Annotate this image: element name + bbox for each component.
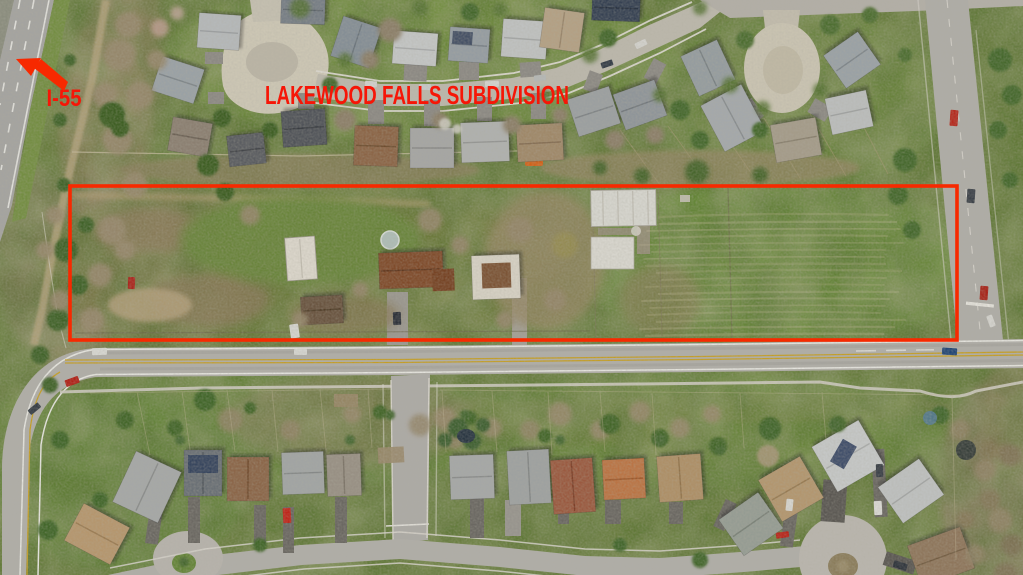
svg-text:LAKEWOOD FALLS SUBDIVISION: LAKEWOOD FALLS SUBDIVISION — [265, 80, 569, 110]
